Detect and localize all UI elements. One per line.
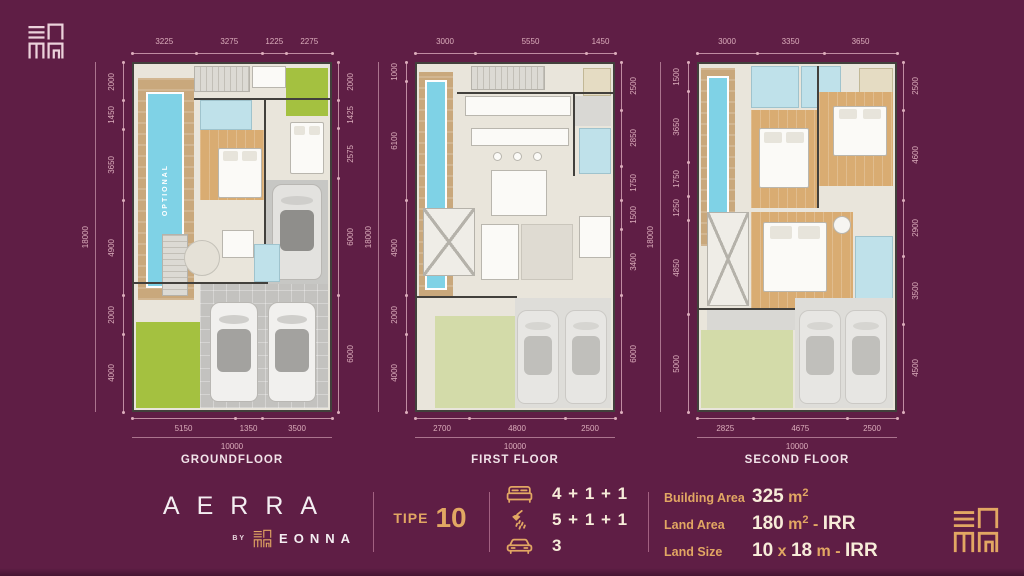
bathroom-count: 5 + 1 + 1 xyxy=(552,510,628,530)
height-total-dimension: 18000 xyxy=(645,62,665,412)
bottom-dimensions: 515013503500 xyxy=(132,414,332,434)
dimension-label: 2500 xyxy=(543,425,637,433)
brochure-slide: 3225327512252275 18000 20001450365049002… xyxy=(0,0,1024,576)
floor-name: SECOND FLOOR xyxy=(672,454,922,466)
type-number: 10 xyxy=(435,502,466,534)
bar-stool xyxy=(493,152,502,161)
dimension-label: 6100 xyxy=(391,132,399,150)
divider xyxy=(373,492,374,552)
divider xyxy=(648,492,649,552)
dimension-segment: 4900 xyxy=(387,200,411,295)
dimension-label: 3650 xyxy=(673,118,681,136)
floor-section-groundfloor: 3225327512252275 18000 20001450365049002… xyxy=(72,28,392,514)
wall xyxy=(457,92,613,94)
dimension-label: 3500 xyxy=(912,282,920,300)
car-icon xyxy=(502,536,536,556)
dimension-label: 10000 xyxy=(504,443,526,452)
area-value-part: IRR xyxy=(823,513,856,534)
dimension-label: 1000 xyxy=(391,63,399,81)
dimension-segment: 1500 xyxy=(669,62,693,91)
width-total-dimension: 10000 xyxy=(415,434,615,452)
dimension-segment: 3500 xyxy=(262,414,332,434)
garden xyxy=(286,68,328,116)
dimension-segment: 4900 xyxy=(104,200,128,295)
dimension-segment: 2000 xyxy=(387,295,411,334)
dimension-label: 5000 xyxy=(673,355,681,373)
dimension-label: 18000 xyxy=(365,226,373,248)
dimension-segment: 2900 xyxy=(899,200,923,256)
area-value-part: 10 xyxy=(752,540,773,561)
kitchen-counter xyxy=(252,66,286,88)
bathroom xyxy=(855,236,893,306)
dimension-label: 10000 xyxy=(221,443,243,452)
dimension-segment: 4850 xyxy=(669,220,693,314)
top-dimensions: 3225327512252275 xyxy=(132,36,332,58)
area-value: 180 m2 - IRR xyxy=(752,513,855,535)
width-total-dimension: 10000 xyxy=(132,434,332,452)
car xyxy=(565,310,607,404)
dimension-label: 1750 xyxy=(673,170,681,188)
eonna-seal-logo xyxy=(952,506,1000,554)
powder-room xyxy=(254,244,280,282)
garden xyxy=(136,322,200,408)
bathroom xyxy=(751,66,799,108)
bed xyxy=(290,122,324,174)
dimension-label: 1450 xyxy=(564,38,637,46)
by-label: BY xyxy=(232,535,246,542)
spec-list: 4 + 1 + 1 5 + 1 + 1 3 xyxy=(502,482,628,557)
bed-icon xyxy=(502,484,536,504)
area-value-part: m - xyxy=(812,543,845,560)
bed xyxy=(763,222,827,292)
dimension-segment: 4500 xyxy=(899,325,923,413)
area-value: 10 x 18 m - IRR xyxy=(752,540,878,562)
dimension-segment: 1750 xyxy=(669,162,693,196)
dimension-segment: 4000 xyxy=(387,334,411,412)
dimension-label: 2000 xyxy=(108,306,116,324)
height-total-dimension: 18000 xyxy=(80,62,100,412)
dimension-label: 2900 xyxy=(912,219,920,237)
dimension-label: 3500 xyxy=(240,425,354,433)
floor-section-first-floor: 300055501450 18000 10006100490020004000 xyxy=(355,28,675,514)
brand-lockup: AERRA BY EONNA xyxy=(128,492,352,548)
area-value-part: x xyxy=(773,543,791,560)
top-dimensions: 300055501450 xyxy=(415,36,615,58)
dimension-label: 18000 xyxy=(82,226,90,248)
bar-stool xyxy=(513,152,522,161)
dimension-label: 2000 xyxy=(108,73,116,91)
dimension-label: 2000 xyxy=(391,306,399,324)
area-value-part: 2 xyxy=(802,487,808,499)
dimension-segment: 2500 xyxy=(847,414,897,434)
area-value: 325 m2 xyxy=(752,486,809,508)
company-name: EONNA xyxy=(279,531,356,546)
left-dimensions: 150036501750125048505000 xyxy=(669,62,693,412)
dimension-label: 4000 xyxy=(108,364,116,382)
dimension-segment: 3650 xyxy=(669,91,693,162)
floorplan-second-floor xyxy=(697,62,897,412)
kitchen-counter xyxy=(465,96,571,116)
dimension-label: 2500 xyxy=(912,77,920,95)
area-row-land-area: Land Area 180 m2 - IRR xyxy=(664,513,878,536)
bar-stool xyxy=(533,152,542,161)
stairs xyxy=(471,66,545,90)
dimension-label: 4900 xyxy=(391,239,399,257)
garden-below xyxy=(435,316,515,408)
round-chair xyxy=(833,216,851,234)
width-total-dimension: 10000 xyxy=(697,434,897,452)
divider xyxy=(489,492,490,552)
bed xyxy=(759,128,809,188)
desk xyxy=(579,216,611,258)
type-badge: TIPE 10 xyxy=(378,496,482,540)
brand-subline: BY EONNA xyxy=(128,529,352,548)
kitchen-island xyxy=(471,128,569,146)
dimension-segment: 6100 xyxy=(387,81,411,200)
dimension-label: 4600 xyxy=(912,146,920,164)
stairs xyxy=(194,66,250,92)
left-dimensions: 10006100490020004000 xyxy=(387,62,411,412)
bedroom-count: 4 + 1 + 1 xyxy=(552,484,628,504)
car xyxy=(845,310,887,404)
spec-row-bedrooms: 4 + 1 + 1 xyxy=(502,482,628,505)
spec-row-bathrooms: 5 + 1 + 1 xyxy=(502,508,628,531)
car xyxy=(517,310,559,404)
brand-name: AERRA xyxy=(128,492,369,521)
dimension-segment: 1450 xyxy=(586,36,615,58)
area-label: Land Area xyxy=(664,518,752,532)
bathroom xyxy=(200,100,252,130)
round-rug xyxy=(184,240,220,276)
dimension-label: 10000 xyxy=(786,443,808,452)
car-count: 3 xyxy=(552,536,562,556)
type-label: TIPE xyxy=(393,510,428,526)
dimension-segment: 3500 xyxy=(899,256,923,324)
dimension-segment: 3650 xyxy=(104,129,128,200)
bottom-dimensions: 282546752500 xyxy=(697,414,897,434)
car xyxy=(799,310,841,404)
dimension-segment: 2275 xyxy=(287,36,333,58)
dimension-segment: 5000 xyxy=(669,315,693,412)
dimension-segment: 2000 xyxy=(104,62,128,101)
hallway xyxy=(575,96,611,126)
area-value-part: m xyxy=(784,489,803,506)
area-label: Land Size xyxy=(664,545,752,559)
area-value-part: m xyxy=(784,516,803,533)
dimension-segment: 1000 xyxy=(387,62,411,81)
dimension-label: 2000 xyxy=(347,73,355,91)
stair-void xyxy=(423,208,475,276)
shower-icon xyxy=(502,510,536,530)
wall xyxy=(417,296,517,298)
left-dimensions: 200014503650490020004000 xyxy=(104,62,128,412)
floorplan-first-floor xyxy=(415,62,615,412)
dimension-label: 3650 xyxy=(108,156,116,174)
dimension-label: 6000 xyxy=(347,345,355,363)
bed xyxy=(833,106,887,156)
dimension-segment: 2500 xyxy=(565,414,615,434)
eonna-seal-logo xyxy=(27,22,65,60)
dining-table xyxy=(491,170,547,216)
top-dimensions: 300033503650 xyxy=(697,36,897,58)
right-dimensions: 25004600290035004500 xyxy=(899,62,923,412)
garden-below xyxy=(701,330,793,408)
dimension-segment: 2000 xyxy=(104,295,128,334)
area-value-part: IRR xyxy=(845,540,878,561)
desk xyxy=(222,230,254,258)
area-value-part: 18 xyxy=(791,540,812,561)
sofa xyxy=(481,224,519,280)
dimension-label: 1500 xyxy=(673,68,681,86)
floor-section-second-floor: 300033503650 18000 150036501750125048505… xyxy=(637,28,957,514)
dimension-label: 1425 xyxy=(347,106,355,124)
dimension-label: 4900 xyxy=(108,239,116,257)
wall xyxy=(573,92,575,176)
dimension-segment: 4600 xyxy=(899,111,923,200)
area-row-land-size: Land Size 10 x 18 m - IRR xyxy=(664,540,878,563)
wall xyxy=(817,66,819,208)
dimension-label: 4000 xyxy=(391,364,399,382)
pool-optional-label: OPTIONAL xyxy=(162,164,169,216)
dimension-segment: 1450 xyxy=(104,101,128,129)
dimension-segment: 1250 xyxy=(669,196,693,220)
dimension-label: 2500 xyxy=(825,425,919,433)
roof-ledge xyxy=(707,310,795,330)
area-value-part: 325 xyxy=(752,486,784,507)
dimension-segment: 3650 xyxy=(824,36,897,58)
bathroom xyxy=(579,128,611,174)
dimension-label: 6000 xyxy=(347,228,355,246)
area-row-building: Building Area 325 m2 xyxy=(664,486,878,509)
stair-void xyxy=(707,212,749,306)
area-list: Building Area 325 m2 Land Area 180 m2 - … xyxy=(664,486,878,563)
car xyxy=(268,302,316,402)
dimension-segment: 4000 xyxy=(104,334,128,412)
floor-name: FIRST FLOOR xyxy=(390,454,640,466)
car xyxy=(210,302,258,402)
dimension-segment: 2500 xyxy=(899,62,923,111)
area-value-part: 2 xyxy=(802,514,808,526)
bed xyxy=(218,148,262,198)
stairs xyxy=(162,234,188,296)
eonna-seal-icon xyxy=(253,529,272,548)
dimension-label: 4850 xyxy=(673,259,681,277)
dimension-label: 4500 xyxy=(912,359,920,377)
bottom-dimensions: 270048002500 xyxy=(415,414,615,434)
living-room-rug xyxy=(521,224,573,280)
floor-name: GROUNDFLOOR xyxy=(107,454,357,466)
floorplan-groundfloor: OPTIONAL xyxy=(132,62,332,412)
dimension-label: 2275 xyxy=(265,38,355,46)
dimension-label: 1250 xyxy=(673,199,681,217)
area-value-part: - xyxy=(809,516,823,533)
dimension-label: 2575 xyxy=(347,145,355,163)
dimension-label: 1450 xyxy=(108,106,116,124)
area-label: Building Area xyxy=(664,491,752,505)
area-value-part: 180 xyxy=(752,513,784,534)
dimension-label: 3650 xyxy=(802,38,919,46)
height-total-dimension: 18000 xyxy=(363,62,383,412)
spec-row-cars: 3 xyxy=(502,534,628,557)
dimension-label: 18000 xyxy=(647,226,655,248)
